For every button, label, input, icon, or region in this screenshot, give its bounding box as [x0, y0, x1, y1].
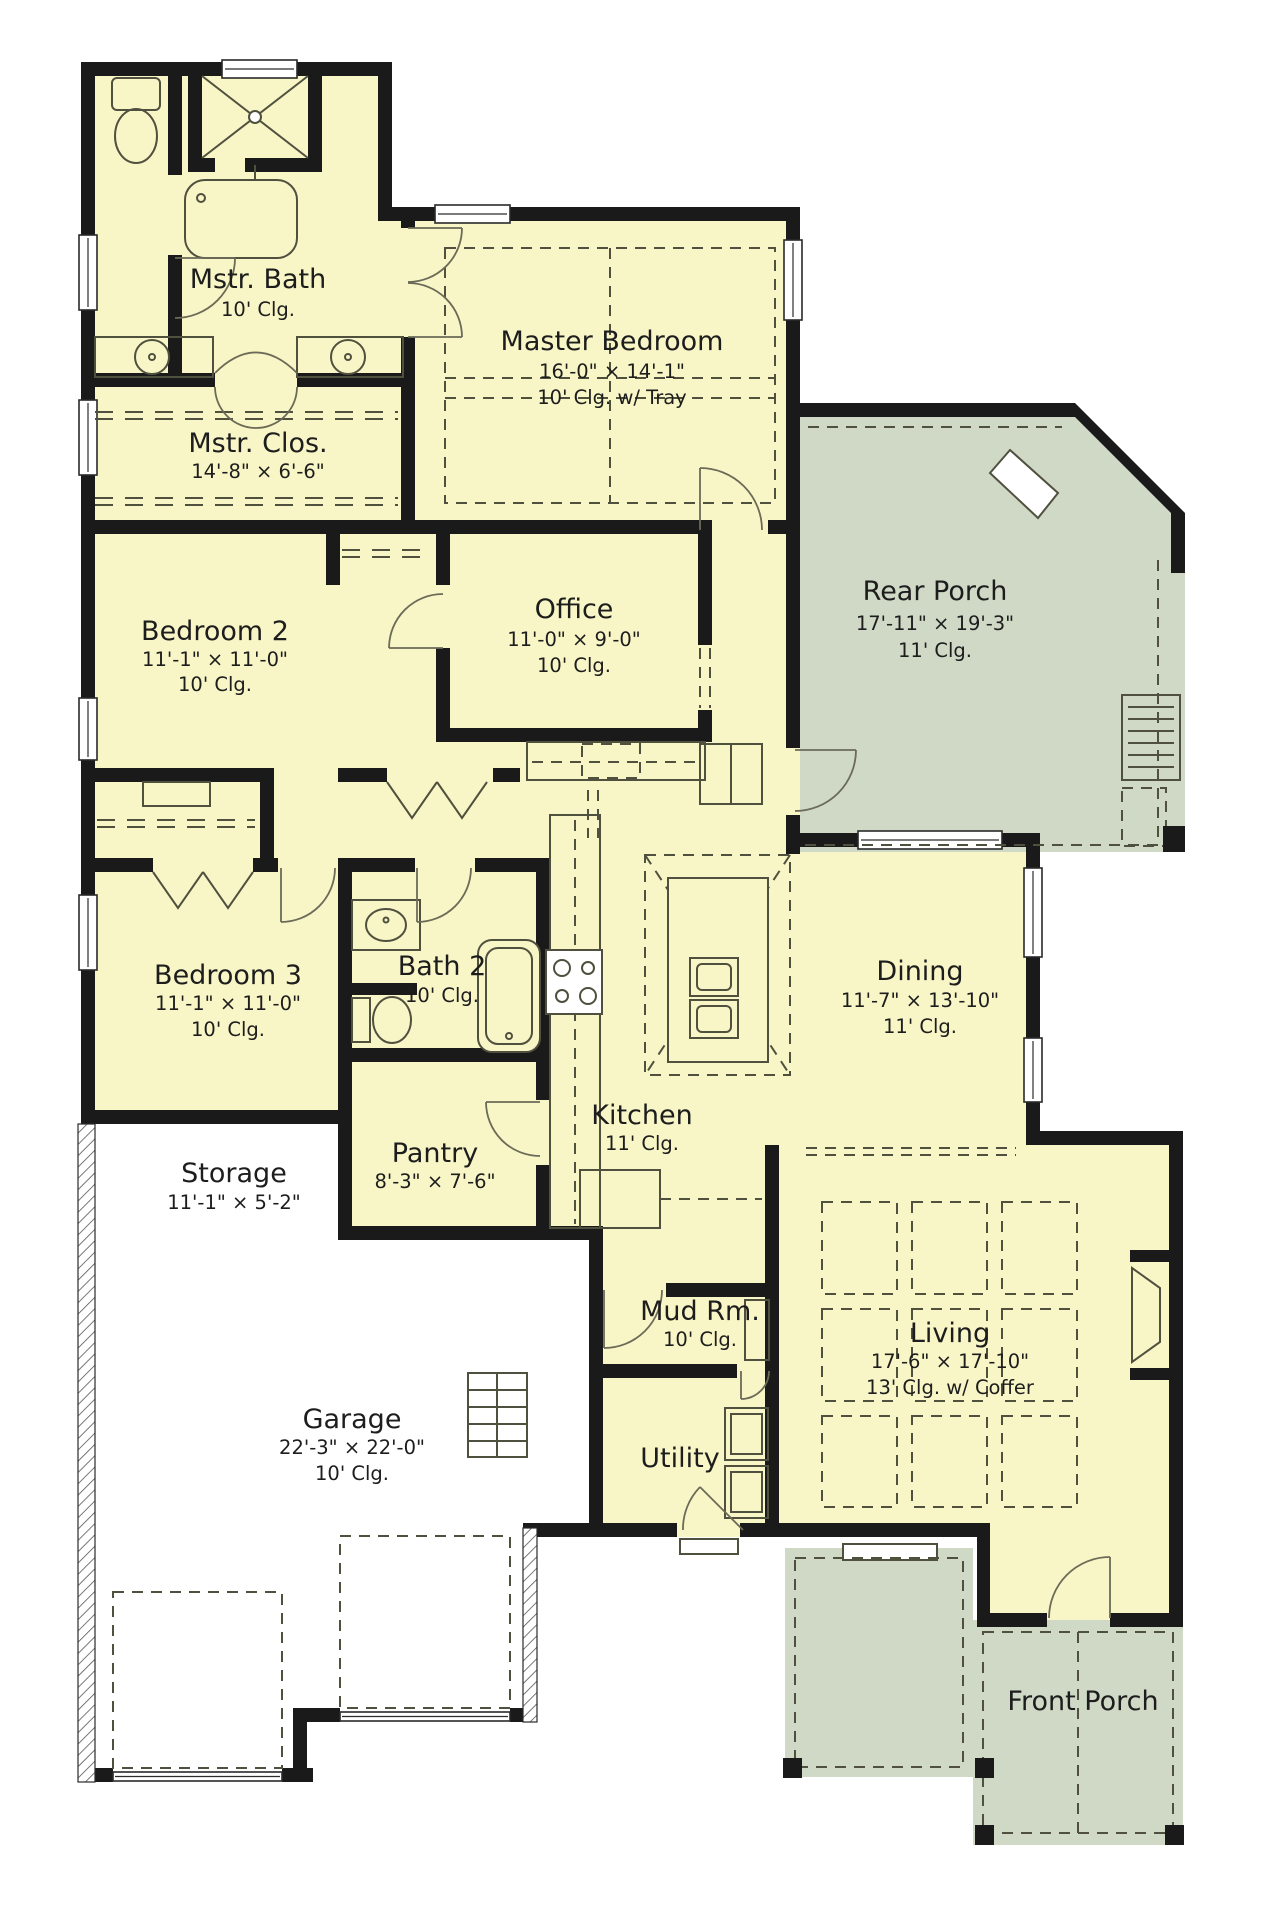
mstr-clos-name: Mstr. Clos.	[188, 428, 327, 459]
tub-icon	[185, 180, 297, 258]
bedroom3-ceiling: 10' Clg.	[191, 1018, 265, 1041]
garage-right-wall-hatch	[523, 1528, 537, 1722]
master-bedroom-ceiling: 10' Clg. w/ Tray	[537, 386, 686, 409]
kitchen-name: Kitchen	[591, 1100, 692, 1131]
garage-doors	[113, 1536, 510, 1781]
pantry-name: Pantry	[392, 1138, 478, 1169]
mud-rm-ceiling: 10' Clg.	[663, 1328, 737, 1351]
mud-rm-name: Mud Rm.	[640, 1296, 760, 1327]
label-kitchen: Kitchen 11' Clg.	[591, 1100, 692, 1155]
rear-porch-name: Rear Porch	[863, 576, 1008, 607]
mstr-bath-name: Mstr. Bath	[190, 264, 327, 295]
living-ceiling: 13' Clg. w/ Coffer	[866, 1376, 1035, 1399]
dining-dims: 11'-7" × 13'-10"	[841, 989, 999, 1012]
range-icon	[546, 950, 602, 1014]
label-bath2: Bath 2 10' Clg.	[398, 951, 487, 1007]
garage-ceiling: 10' Clg.	[315, 1462, 389, 1485]
pantry-dims: 8'-3" × 7'-6"	[374, 1170, 495, 1193]
floor-plan: Mstr. Bath 10' Clg. Master Bedroom 16'-0…	[0, 0, 1262, 1920]
bedroom2-name: Bedroom 2	[141, 616, 289, 647]
rear-porch-dims: 17'-11" × 19'-3"	[856, 612, 1014, 635]
kitchen-ceiling: 11' Clg.	[605, 1132, 679, 1155]
storage-name: Storage	[181, 1158, 287, 1189]
bedroom3-name: Bedroom 3	[154, 960, 302, 991]
rear-porch-ceiling: 11' Clg.	[898, 639, 972, 662]
label-storage: Storage 11'-1" × 5'-2"	[167, 1158, 301, 1214]
garage-left-wall-hatch	[78, 1124, 95, 1782]
office-ceiling: 10' Clg.	[537, 654, 611, 677]
label-mstr-clos: Mstr. Clos. 14'-8" × 6'-6"	[188, 428, 327, 483]
storage-dims: 11'-1" × 5'-2"	[167, 1191, 301, 1214]
attic-ladder-icon	[468, 1373, 527, 1457]
living-name: Living	[910, 1318, 990, 1349]
front-porch-name: Front Porch	[1007, 1686, 1158, 1717]
garage-name: Garage	[303, 1404, 402, 1435]
mstr-bath-ceiling: 10' Clg.	[221, 298, 295, 321]
floor-plan-drawing: Mstr. Bath 10' Clg. Master Bedroom 16'-0…	[0, 0, 1262, 1920]
office-name: Office	[535, 594, 614, 625]
bath2-ceiling: 10' Clg.	[405, 984, 479, 1007]
front-porch-wrap-floor	[785, 1548, 973, 1777]
bedroom3-dims: 11'-1" × 11'-0"	[155, 992, 301, 1015]
mstr-clos-dims: 14'-8" × 6'-6"	[191, 460, 325, 483]
label-garage: Garage 22'-3" × 22'-0" 10' Clg.	[279, 1404, 425, 1485]
bath2-name: Bath 2	[398, 951, 487, 982]
office-dims: 11'-0" × 9'-0"	[507, 628, 641, 651]
master-bedroom-dims: 16'-0" × 14'-1"	[539, 360, 685, 383]
garage-dims: 22'-3" × 22'-0"	[279, 1436, 425, 1459]
master-bedroom-name: Master Bedroom	[501, 326, 724, 357]
utility-name: Utility	[640, 1443, 719, 1474]
bedroom2-ceiling: 10' Clg.	[178, 673, 252, 696]
label-pantry: Pantry 8'-3" × 7'-6"	[374, 1138, 495, 1193]
living-dims: 17'-6" × 17'-10"	[871, 1350, 1029, 1373]
label-front-porch: Front Porch	[1007, 1686, 1158, 1717]
dining-name: Dining	[876, 956, 963, 987]
bedroom2-dims: 11'-1" × 11'-0"	[142, 648, 288, 671]
label-utility: Utility	[640, 1443, 719, 1474]
dining-ceiling: 11' Clg.	[883, 1015, 957, 1038]
